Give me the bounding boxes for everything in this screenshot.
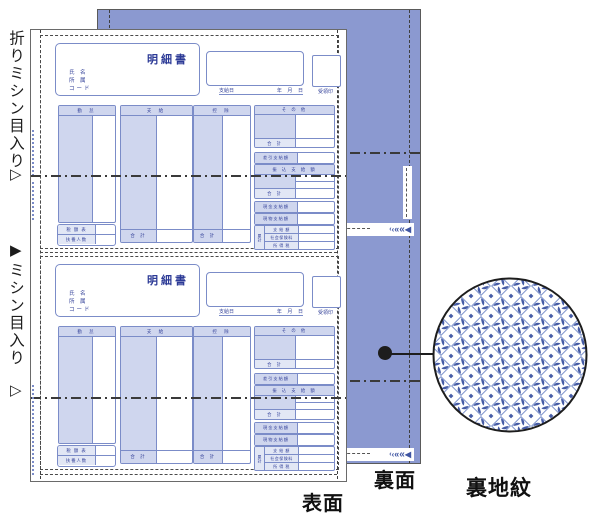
front-side-label: 表面	[302, 487, 344, 516]
cash-pay-label: 現金支給額	[255, 202, 298, 212]
transfer-total-label: 合 計	[255, 189, 296, 198]
cut-perforation-line-middle	[40, 252, 337, 253]
attendance-value-cells	[93, 116, 115, 222]
payments-total-value	[157, 451, 192, 463]
payments-total-label: 合 計	[121, 451, 157, 463]
cum-insurance-value	[299, 234, 334, 241]
fold-marker-icon-lower: ▷	[10, 383, 22, 398]
product-illustration: ‹ ‹ « « ◀ ‹ ‹ « « ◀ 明細書 氏 名	[0, 0, 600, 520]
deductions-total-label: 合 計	[194, 230, 223, 242]
column-header: 勤 怠	[59, 106, 115, 116]
cumulative-label: 累計	[255, 447, 265, 470]
net-pay-value	[298, 153, 334, 163]
column-deductions: 控 除 合 計	[193, 105, 251, 243]
deductions-label-cells	[194, 337, 223, 450]
back-side-label: 裏面	[374, 464, 416, 493]
front-sheet: 明細書 氏 名 所 属 コード 支給日 年 月 日 受領印 勤 怠 税 額 表	[30, 29, 347, 482]
fold-line-upper	[31, 175, 346, 177]
tax-table-box: 税 額 表 扶養人数	[57, 445, 116, 467]
net-pay-value	[298, 374, 334, 384]
cum-tax-value	[299, 463, 334, 470]
statement-coupon: 明細書 氏 名 所 属 コード 支給日 年 月 日 受領印 勤 怠 税 額 表	[41, 257, 338, 469]
stub-microtext	[32, 182, 34, 222]
tax-table-value	[96, 446, 115, 455]
cum-pay-label: 支 給 額	[265, 226, 299, 233]
cumulative-block: 累計 支 給 額 社会保険料 所 得 税	[254, 225, 335, 250]
transfer-total-value	[296, 189, 334, 198]
id-labels: 氏 名 所 属 コード	[69, 290, 92, 314]
net-pay-row: 差引支給額	[254, 152, 335, 164]
cash-pay-value	[298, 202, 334, 212]
pay-date-label: 支給日	[219, 308, 234, 315]
callout-dot	[378, 346, 392, 360]
other-label-cells	[255, 336, 296, 359]
pay-date-box	[206, 272, 304, 307]
column-deductions: 控 除 合 計	[193, 326, 251, 464]
name-label: 氏 名	[69, 69, 92, 77]
cash-pay-row: 現金支給額	[254, 201, 335, 213]
stub-microtext	[32, 130, 34, 175]
cum-insurance-label: 社会保険料	[265, 234, 299, 241]
tax-table-value	[96, 225, 115, 234]
cash-pay-value	[298, 423, 334, 433]
inkind-pay-row: 現物支給額	[254, 213, 335, 225]
cut-perforation-label: ミシン目入り	[4, 262, 26, 384]
id-labels: 氏 名 所 属 コード	[69, 69, 92, 93]
column-attendance: 勤 怠	[58, 326, 116, 444]
other-label-cells	[255, 115, 296, 138]
coupon-slot-lower: 明細書 氏 名 所 属 コード 支給日 年 月 日 受領印 勤 怠 税 額 表	[40, 256, 339, 470]
back-perforation-window	[403, 166, 412, 219]
date-units: 年 月 日	[277, 308, 303, 315]
back-pattern-magnifier	[431, 276, 589, 434]
cum-pay-value	[299, 226, 334, 233]
fold-marker-icon-upper: ▷	[10, 167, 22, 182]
inkind-pay-value	[298, 214, 334, 224]
tax-table-label: 税 額 表	[58, 225, 96, 234]
other-block: そ の 他 合 計	[254, 326, 335, 369]
code-label: コード	[69, 306, 92, 314]
tear-direction-chevrons: ‹ ‹ « « ◀	[389, 448, 411, 461]
cum-insurance-label: 社会保険料	[265, 455, 299, 462]
stamp-box	[312, 276, 341, 308]
net-pay-label: 差引支給額	[255, 153, 298, 163]
column-payments: 支 給 合 計	[120, 326, 193, 464]
payments-value-cells	[157, 116, 192, 229]
column-header: そ の 他	[255, 327, 334, 336]
column-header: 支 給	[121, 106, 192, 116]
inkind-pay-value	[298, 435, 334, 445]
column-header: そ の 他	[255, 106, 334, 115]
stamp-label: 受領印	[312, 88, 339, 95]
arrow-icon: ◀	[405, 226, 411, 234]
dependents-label: 扶養人数	[58, 456, 96, 465]
other-total-label: 合 計	[255, 139, 296, 148]
payments-label-cells	[121, 337, 157, 450]
statement-coupon: 明細書 氏 名 所 属 コード 支給日 年 月 日 受領印 勤 怠 税 額 表	[41, 36, 338, 248]
deductions-value-cells	[223, 337, 250, 450]
tear-direction-chevrons: ‹ ‹ « « ◀	[389, 223, 411, 236]
attendance-label-cells	[59, 337, 93, 443]
tax-table-box: 税 額 表 扶養人数	[57, 224, 116, 246]
fold-line-lower	[31, 397, 346, 399]
perforation-dashes	[406, 168, 407, 217]
payments-label-cells	[121, 116, 157, 229]
name-label: 氏 名	[69, 290, 92, 298]
pay-date-line: 支給日 年 月 日	[219, 307, 303, 316]
pay-date-line: 支給日 年 月 日	[219, 86, 303, 95]
other-total-label: 合 計	[255, 360, 296, 369]
column-attendance: 勤 怠	[58, 105, 116, 223]
payments-value-cells	[157, 337, 192, 450]
transfer-block: 振 込 支 給 額 合 計	[254, 164, 335, 199]
deductions-value-cells	[223, 116, 250, 229]
callout-line	[391, 353, 433, 355]
other-total-value	[296, 139, 334, 148]
stamp-label: 受領印	[312, 309, 339, 316]
back-pattern-label: 裏地紋	[466, 472, 532, 502]
cum-pay-label: 支 給 額	[265, 447, 299, 454]
cumulative-label: 累計	[255, 226, 265, 249]
other-block: そ の 他 合 計	[254, 105, 335, 148]
deductions-total-value	[223, 451, 250, 463]
code-label: コード	[69, 85, 92, 93]
net-pay-row: 差引支給額	[254, 373, 335, 385]
header-box: 明細書 氏 名 所 属 コード	[55, 264, 200, 317]
cash-pay-row: 現金支給額	[254, 422, 335, 434]
column-header: 支 給	[121, 327, 192, 337]
fold-perforation-label: 折りミシン目入り	[4, 30, 26, 170]
back-right-perforation-line	[409, 10, 410, 463]
net-pay-label: 差引支給額	[255, 374, 298, 384]
stamp-box	[312, 55, 341, 87]
inkind-pay-label: 現物支給額	[255, 214, 298, 224]
cum-tax-label: 所 得 税	[265, 242, 299, 249]
column-header: 控 除	[194, 106, 250, 116]
dept-label: 所 属	[69, 298, 92, 306]
cum-pay-value	[299, 447, 334, 454]
deductions-total-label: 合 計	[194, 451, 223, 463]
inkind-pay-row: 現物支給額	[254, 434, 335, 446]
cumulative-block: 累計 支 給 額 社会保険料 所 得 税	[254, 446, 335, 471]
column-payments: 支 給 合 計	[120, 105, 193, 243]
dependents-value	[96, 235, 115, 244]
cut-marker-icon: ▶	[10, 243, 22, 258]
tax-table-label: 税 額 表	[58, 446, 96, 455]
other-total-value	[296, 360, 334, 369]
dependents-label: 扶養人数	[58, 235, 96, 244]
deductions-label-cells	[194, 116, 223, 229]
payments-total-value	[157, 230, 192, 242]
coupon-title: 明細書	[147, 272, 189, 288]
cum-tax-value	[299, 242, 334, 249]
pay-date-label: 支給日	[219, 87, 234, 94]
column-header: 勤 怠	[59, 327, 115, 337]
date-units: 年 月 日	[277, 87, 303, 94]
other-value-cells	[296, 115, 334, 138]
attendance-value-cells	[93, 337, 115, 443]
cut-perforation-line-bottom	[40, 474, 337, 475]
attendance-label-cells	[59, 116, 93, 222]
transfer-header: 振 込 支 給 額	[255, 386, 334, 396]
deductions-total-value	[223, 230, 250, 242]
coupon-slot-upper: 明細書 氏 名 所 属 コード 支給日 年 月 日 受領印 勤 怠 税 額 表	[40, 35, 339, 249]
other-value-cells	[296, 336, 334, 359]
cum-insurance-value	[299, 455, 334, 462]
transfer-header: 振 込 支 給 額	[255, 165, 334, 175]
back-pattern-swatch	[431, 276, 589, 434]
cum-tax-label: 所 得 税	[265, 463, 299, 470]
dependents-value	[96, 456, 115, 465]
transfer-total-value	[296, 410, 334, 419]
header-box: 明細書 氏 名 所 属 コード	[55, 43, 200, 96]
pay-date-box	[206, 51, 304, 86]
dept-label: 所 属	[69, 77, 92, 85]
arrow-icon: ◀	[405, 451, 411, 459]
cash-pay-label: 現金支給額	[255, 423, 298, 433]
coupon-title: 明細書	[147, 51, 189, 67]
payments-total-label: 合 計	[121, 230, 157, 242]
transfer-block: 振 込 支 給 額 合 計	[254, 385, 335, 420]
column-header: 控 除	[194, 327, 250, 337]
stub-microtext	[32, 385, 34, 475]
transfer-total-label: 合 計	[255, 410, 296, 419]
inkind-pay-label: 現物支給額	[255, 435, 298, 445]
